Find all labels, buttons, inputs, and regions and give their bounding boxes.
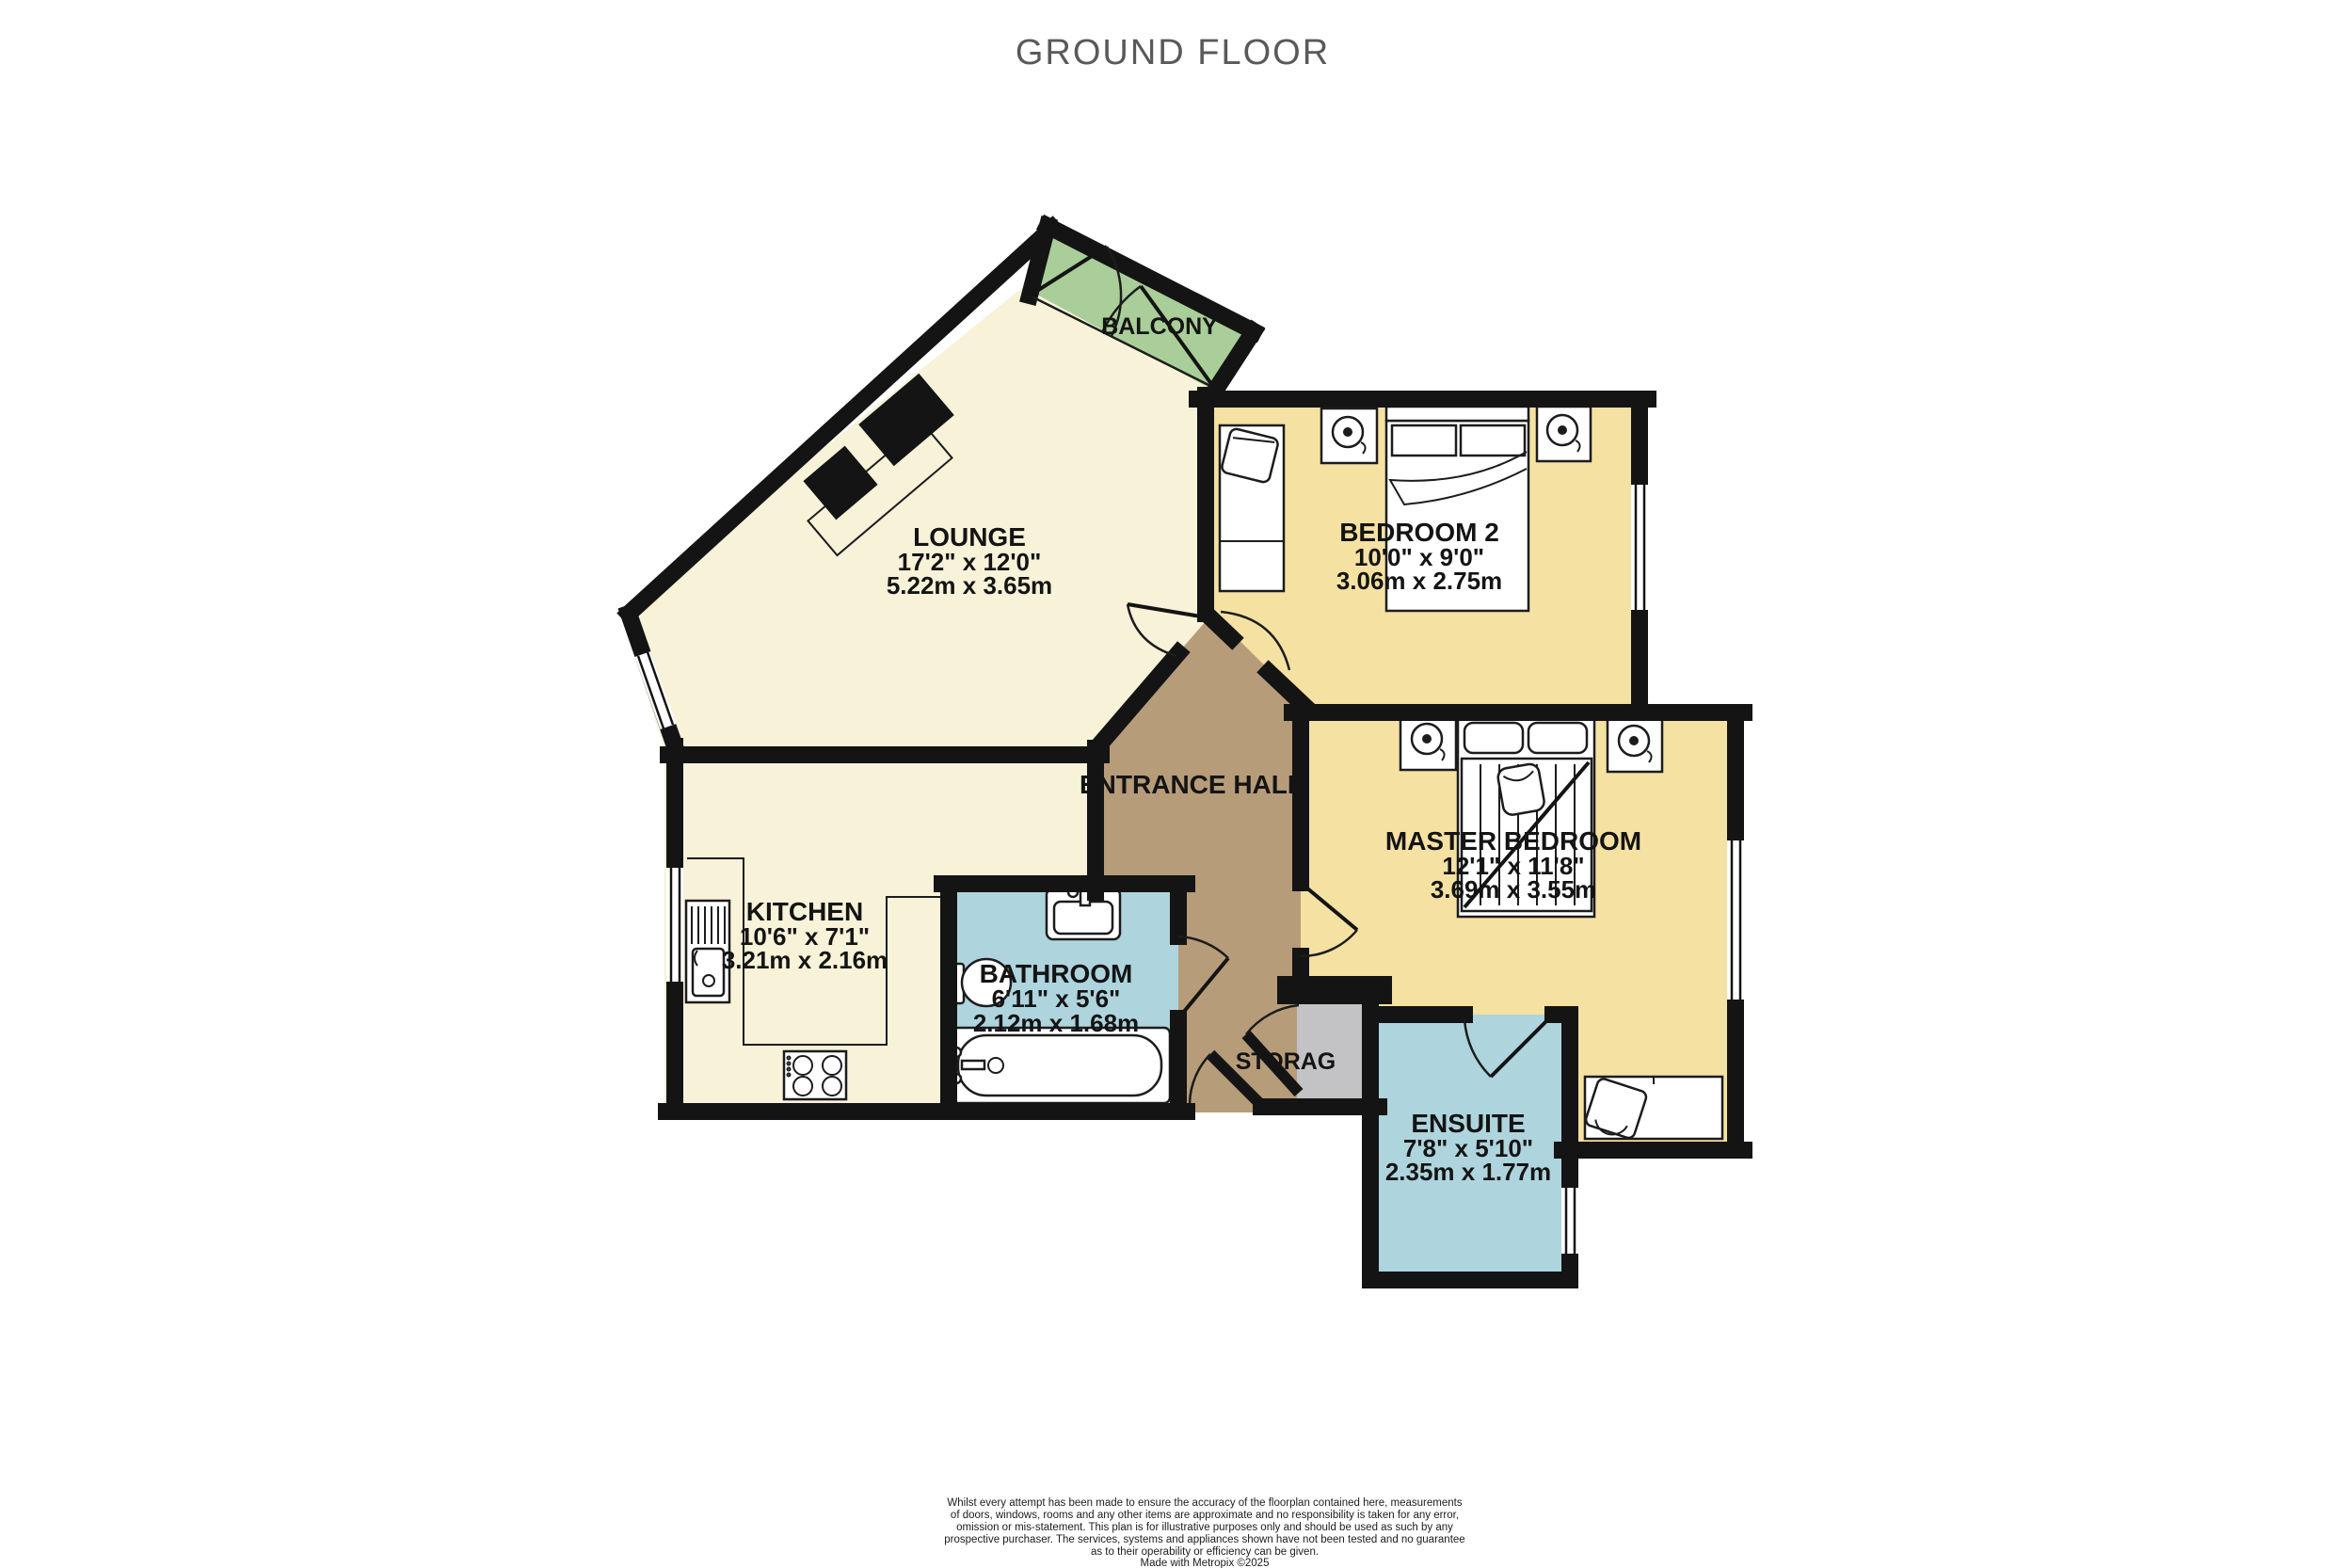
page-title: GROUND FLOOR — [1016, 33, 1330, 72]
window-master-bedroom — [1727, 840, 1744, 1000]
disclaimer-line: prospective purchaser. The services, sys… — [944, 1534, 1464, 1545]
bathtub-icon — [950, 1028, 1170, 1103]
master-nightstand-left-icon — [1400, 715, 1456, 770]
label-master-bedroom-metric: 3.69m x 3.55m — [1431, 875, 1596, 904]
disclaimer-line: omission or mis-statement. This plan is … — [956, 1522, 1453, 1533]
disclaimer-line: of doors, windows, rooms and any other i… — [951, 1510, 1459, 1521]
bedroom2-nightstand-left-icon — [1321, 408, 1377, 463]
bathroom-sink-icon — [1047, 887, 1120, 939]
credit-line: Made with Metropix ©2025 — [1141, 1558, 1270, 1568]
bedroom2-nightstand-right-icon — [1537, 407, 1591, 461]
window-kitchen — [666, 868, 683, 982]
disclaimer-line: Whilst every attempt has been made to en… — [947, 1497, 1462, 1509]
master-desk-icon — [1584, 1077, 1722, 1142]
floorplan-page: BALCONY LOUNGE 17'2" x 12'0" 5.22m x 3.6… — [0, 0, 2352, 1568]
bedroom2-desk-icon — [1220, 425, 1284, 591]
floorplan-canvas: BALCONY LOUNGE 17'2" x 12'0" 5.22m x 3.6… — [0, 0, 2352, 1568]
master-nightstand-right-icon — [1608, 717, 1662, 772]
window-bedroom2 — [1631, 485, 1648, 610]
footer-disclaimer: Whilst every attempt has been made to en… — [944, 1497, 1464, 1568]
label-entrance-hall: ENTRANCE HALL — [1080, 770, 1304, 799]
label-bedroom2-metric: 3.06m x 2.75m — [1336, 567, 1502, 595]
disclaimer-line: as to their operability or efficiency ca… — [1091, 1546, 1319, 1558]
hob-icon — [784, 1051, 846, 1099]
label-ensuite-metric: 2.35m x 1.77m — [1385, 1158, 1551, 1186]
label-bathroom-metric: 2.12m x 1.68m — [973, 1009, 1139, 1037]
label-lounge-metric: 5.22m x 3.65m — [887, 571, 1052, 600]
label-kitchen-metric: 3.21m x 2.16m — [722, 946, 888, 974]
window-ensuite — [1561, 1188, 1578, 1254]
label-storage: STORAG — [1236, 1048, 1336, 1075]
label-balcony: BALCONY — [1101, 313, 1218, 340]
